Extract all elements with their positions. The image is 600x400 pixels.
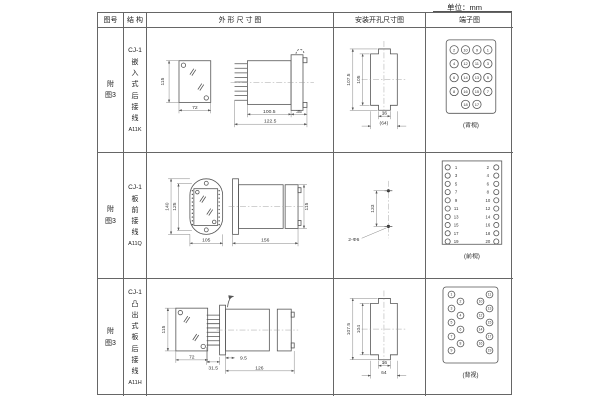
svg-text:156: 156 — [261, 237, 270, 243]
svg-text:126: 126 — [255, 365, 264, 371]
dim-labels: 140 125 105 156 115 — [165, 202, 310, 243]
svg-text:11: 11 — [454, 206, 459, 211]
svg-text:4: 4 — [453, 61, 456, 66]
fig-label: 附图3 — [105, 326, 116, 348]
svg-text:115: 115 — [160, 77, 166, 85]
svg-text:11: 11 — [475, 61, 479, 66]
svg-text:(64): (64) — [380, 121, 389, 127]
svg-text:19: 19 — [488, 349, 492, 353]
model-label: CJ-1 — [128, 184, 142, 191]
svg-text:9: 9 — [451, 349, 453, 353]
svg-text:72: 72 — [192, 105, 198, 111]
type-label: 凸出式板后接线 — [130, 299, 141, 377]
cutout-cell-1: 107.5 105 16 (64) — [334, 28, 426, 153]
terminal-drawing-3: 13579 2468 10121416 1113151719 (背视) — [426, 279, 513, 396]
svg-text:16: 16 — [485, 223, 490, 228]
svg-text:9: 9 — [455, 198, 458, 203]
svg-text:14: 14 — [485, 214, 490, 219]
structure-cell-1: CJ-1 嵌入式后接线 A11K — [124, 28, 147, 153]
svg-text:1: 1 — [451, 293, 453, 297]
svg-text:104: 104 — [356, 325, 362, 333]
terminal-drawing-2: 12 34 56 78 910 1112 1314 1516 1718 1920… — [426, 153, 513, 278]
svg-text:2: 2 — [487, 165, 490, 170]
svg-text:140: 140 — [165, 202, 171, 211]
svg-text:18: 18 — [485, 231, 490, 236]
structure-cell-3: CJ-1 凸出式板后接线 A11H — [124, 279, 147, 396]
svg-text:14: 14 — [463, 75, 468, 80]
fig-label: 附图3 — [105, 204, 116, 226]
svg-text:2-Φ6: 2-Φ6 — [348, 237, 359, 243]
svg-text:6: 6 — [487, 181, 490, 186]
svg-text:2: 2 — [460, 300, 462, 304]
fig-cell-2: 附图3 — [98, 153, 124, 279]
svg-text:16: 16 — [479, 342, 483, 346]
svg-text:11: 11 — [488, 293, 492, 297]
svg-text:8: 8 — [460, 342, 462, 346]
dim-labels: 133 2-Φ6 — [348, 204, 376, 243]
outline-cell-3: 115 72 31.5 9.5 126 — [147, 279, 334, 396]
svg-text:12: 12 — [485, 206, 490, 211]
view-label: (背视) — [463, 371, 479, 379]
svg-text:64: 64 — [381, 370, 387, 376]
svg-text:6: 6 — [460, 328, 462, 332]
svg-text:115: 115 — [304, 202, 310, 210]
col-header-outline: 外 形 尺 寸 图 — [147, 13, 334, 28]
svg-text:20: 20 — [485, 239, 490, 244]
cutout-cell-3: 107.5 104 16 64 — [334, 279, 426, 396]
svg-text:13: 13 — [488, 307, 492, 311]
svg-text:13: 13 — [475, 75, 480, 80]
svg-text:35: 35 — [296, 109, 302, 115]
svg-text:15: 15 — [475, 89, 480, 94]
svg-text:2: 2 — [453, 47, 455, 52]
svg-text:5: 5 — [451, 321, 453, 325]
svg-text:18: 18 — [463, 102, 468, 107]
outline-cell-2: 140 125 105 156 115 — [147, 153, 334, 279]
svg-text:12: 12 — [479, 314, 483, 318]
svg-text:1: 1 — [455, 165, 458, 170]
svg-text:10: 10 — [485, 198, 490, 203]
terminal-cell-3: 13579 2468 10121416 1113151719 (背视) — [426, 279, 513, 396]
svg-text:1: 1 — [487, 47, 489, 52]
svg-text:13: 13 — [454, 214, 459, 219]
col-header-terminal: 端子图 — [426, 13, 513, 28]
svg-text:16: 16 — [382, 360, 388, 366]
col-header-structure: 结 构 — [124, 13, 147, 28]
svg-text:19: 19 — [454, 239, 459, 244]
view-label: (背视) — [463, 121, 479, 129]
svg-text:16: 16 — [463, 89, 468, 94]
svg-text:8: 8 — [487, 190, 490, 195]
svg-text:31.5: 31.5 — [208, 365, 218, 371]
svg-text:5: 5 — [487, 75, 490, 80]
model-label: CJ-1 — [128, 47, 142, 54]
svg-text:4: 4 — [487, 173, 490, 178]
svg-text:15: 15 — [488, 321, 492, 325]
dim-labels: 107.5 104 16 64 — [346, 323, 388, 376]
svg-text:105: 105 — [202, 237, 211, 243]
model-label: CJ-1 — [128, 289, 142, 296]
svg-text:5: 5 — [455, 181, 458, 186]
svg-text:3: 3 — [455, 173, 458, 178]
terminal-drawing-1: 21091 412113 614135 816157 1817 (背视) — [426, 28, 513, 152]
col-header-cutout: 安装开孔尺寸图 — [334, 13, 426, 28]
svg-text:14: 14 — [479, 328, 483, 332]
svg-text:8: 8 — [453, 89, 456, 94]
svg-text:100.5: 100.5 — [263, 109, 276, 115]
code-label: A11K — [128, 127, 141, 133]
code-label: A11H — [128, 380, 141, 386]
spec-table: 图号 结 构 外 形 尺 寸 图 安装开孔尺寸图 端子图 附图3 CJ-1 嵌入… — [97, 12, 512, 395]
svg-text:15: 15 — [454, 223, 459, 228]
cutout-drawing-3: 107.5 104 16 64 — [334, 279, 425, 396]
terminal-numbers: 12 34 56 78 910 1112 1314 1516 1718 1920 — [454, 165, 491, 244]
svg-text:9.5: 9.5 — [240, 355, 247, 361]
fig-cell-3: 附图3 — [98, 279, 124, 396]
cutout-cell-2: 133 2-Φ6 — [334, 153, 426, 279]
type-label: 板前接线 — [130, 194, 141, 239]
svg-text:16: 16 — [382, 111, 388, 117]
svg-text:115: 115 — [161, 325, 167, 333]
dim-labels: 115 72 100.5 35 122.5 — [160, 77, 302, 124]
cutout-drawing-2: 133 2-Φ6 — [334, 153, 425, 278]
svg-text:17: 17 — [475, 102, 479, 107]
manual-page: { "unit_label": "单位：mm", "table": { "hea… — [0, 0, 600, 400]
dim-labels: 107.5 105 16 (64) — [346, 73, 389, 126]
svg-text:4: 4 — [460, 314, 462, 318]
svg-text:9: 9 — [476, 47, 479, 52]
outline-drawing-3: 115 72 31.5 9.5 126 — [147, 279, 333, 396]
col-header-fig: 图号 — [98, 13, 124, 28]
svg-text:17: 17 — [488, 335, 492, 339]
outline-drawing-2: 140 125 105 156 115 — [147, 153, 333, 278]
svg-text:3: 3 — [487, 61, 490, 66]
terminal-cell-1: 21091 412113 614135 816157 1817 (背视) — [426, 28, 513, 153]
terminal-numbers: 13579 2468 10121416 1113151719 — [451, 293, 492, 353]
outline-cell-1: 115 72 100.5 35 122.5 — [147, 28, 334, 153]
svg-text:122.5: 122.5 — [264, 119, 277, 125]
svg-text:107.5: 107.5 — [346, 73, 352, 86]
structure-cell-2: CJ-1 板前接线 A11Q — [124, 153, 147, 279]
svg-text:107.5: 107.5 — [346, 323, 352, 336]
code-label: A11Q — [128, 241, 142, 247]
svg-text:7: 7 — [487, 89, 489, 94]
fig-cell-1: 附图3 — [98, 28, 124, 153]
terminal-circles — [450, 46, 492, 109]
svg-text:10: 10 — [463, 47, 468, 52]
terminal-cell-2: 12 34 56 78 910 1112 1314 1516 1718 1920… — [426, 153, 513, 279]
type-label: 嵌入式后接线 — [130, 57, 141, 124]
cutout-drawing-1: 107.5 105 16 (64) — [334, 28, 425, 152]
svg-text:7: 7 — [451, 335, 453, 339]
svg-text:3: 3 — [451, 307, 453, 311]
outline-drawing-1: 115 72 100.5 35 122.5 — [147, 28, 333, 152]
svg-text:12: 12 — [463, 61, 467, 66]
svg-text:6: 6 — [453, 75, 456, 80]
svg-text:105: 105 — [356, 75, 362, 83]
terminal-circles — [448, 291, 493, 354]
terminal-dot-columns — [192, 190, 220, 225]
view-label: (前视) — [464, 252, 480, 260]
svg-text:17: 17 — [454, 231, 459, 236]
svg-text:125: 125 — [172, 202, 178, 211]
svg-text:10: 10 — [479, 300, 483, 304]
fig-label: 附图3 — [105, 79, 116, 101]
svg-text:72: 72 — [189, 354, 195, 360]
svg-text:133: 133 — [370, 204, 376, 212]
svg-text:7: 7 — [455, 190, 458, 195]
